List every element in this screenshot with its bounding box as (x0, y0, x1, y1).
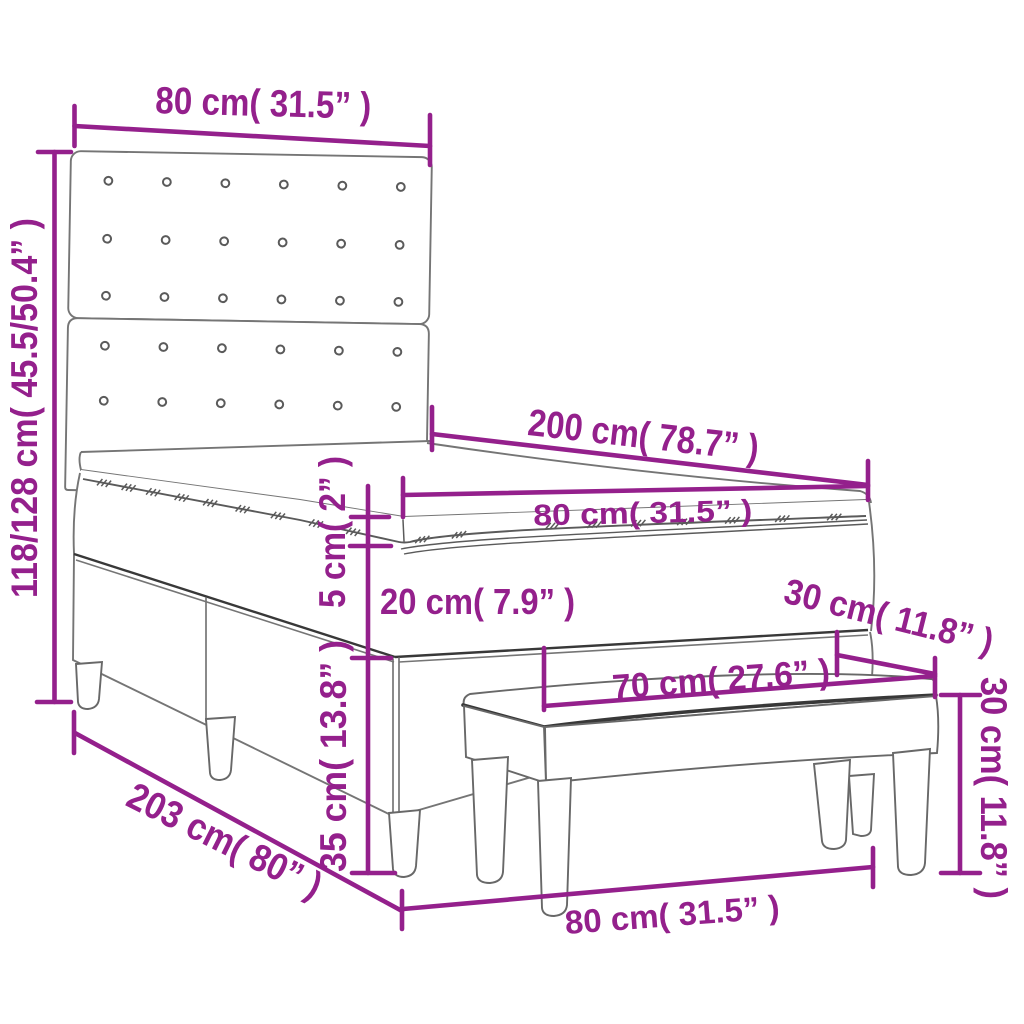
svg-text:80 cm( 31.5” ): 80 cm( 31.5” ) (533, 495, 753, 533)
svg-text:5 cm( 2” ): 5 cm( 2” ) (312, 456, 353, 608)
svg-text:80 cm( 31.5” ): 80 cm( 31.5” ) (564, 888, 781, 941)
svg-text:80 cm( 31.5” ): 80 cm( 31.5” ) (155, 80, 372, 128)
svg-text:20 cm( 7.9” ): 20 cm( 7.9” ) (380, 581, 575, 622)
svg-text:35 cm( 13.8” ): 35 cm( 13.8” ) (313, 640, 354, 872)
svg-text:30 cm( 11.8” ): 30 cm( 11.8” ) (973, 677, 1014, 899)
svg-text:203 cm( 80” ): 203 cm( 80” ) (120, 775, 328, 907)
svg-text:118/128 cm( 45.5/50.4” ): 118/128 cm( 45.5/50.4” ) (4, 218, 45, 598)
